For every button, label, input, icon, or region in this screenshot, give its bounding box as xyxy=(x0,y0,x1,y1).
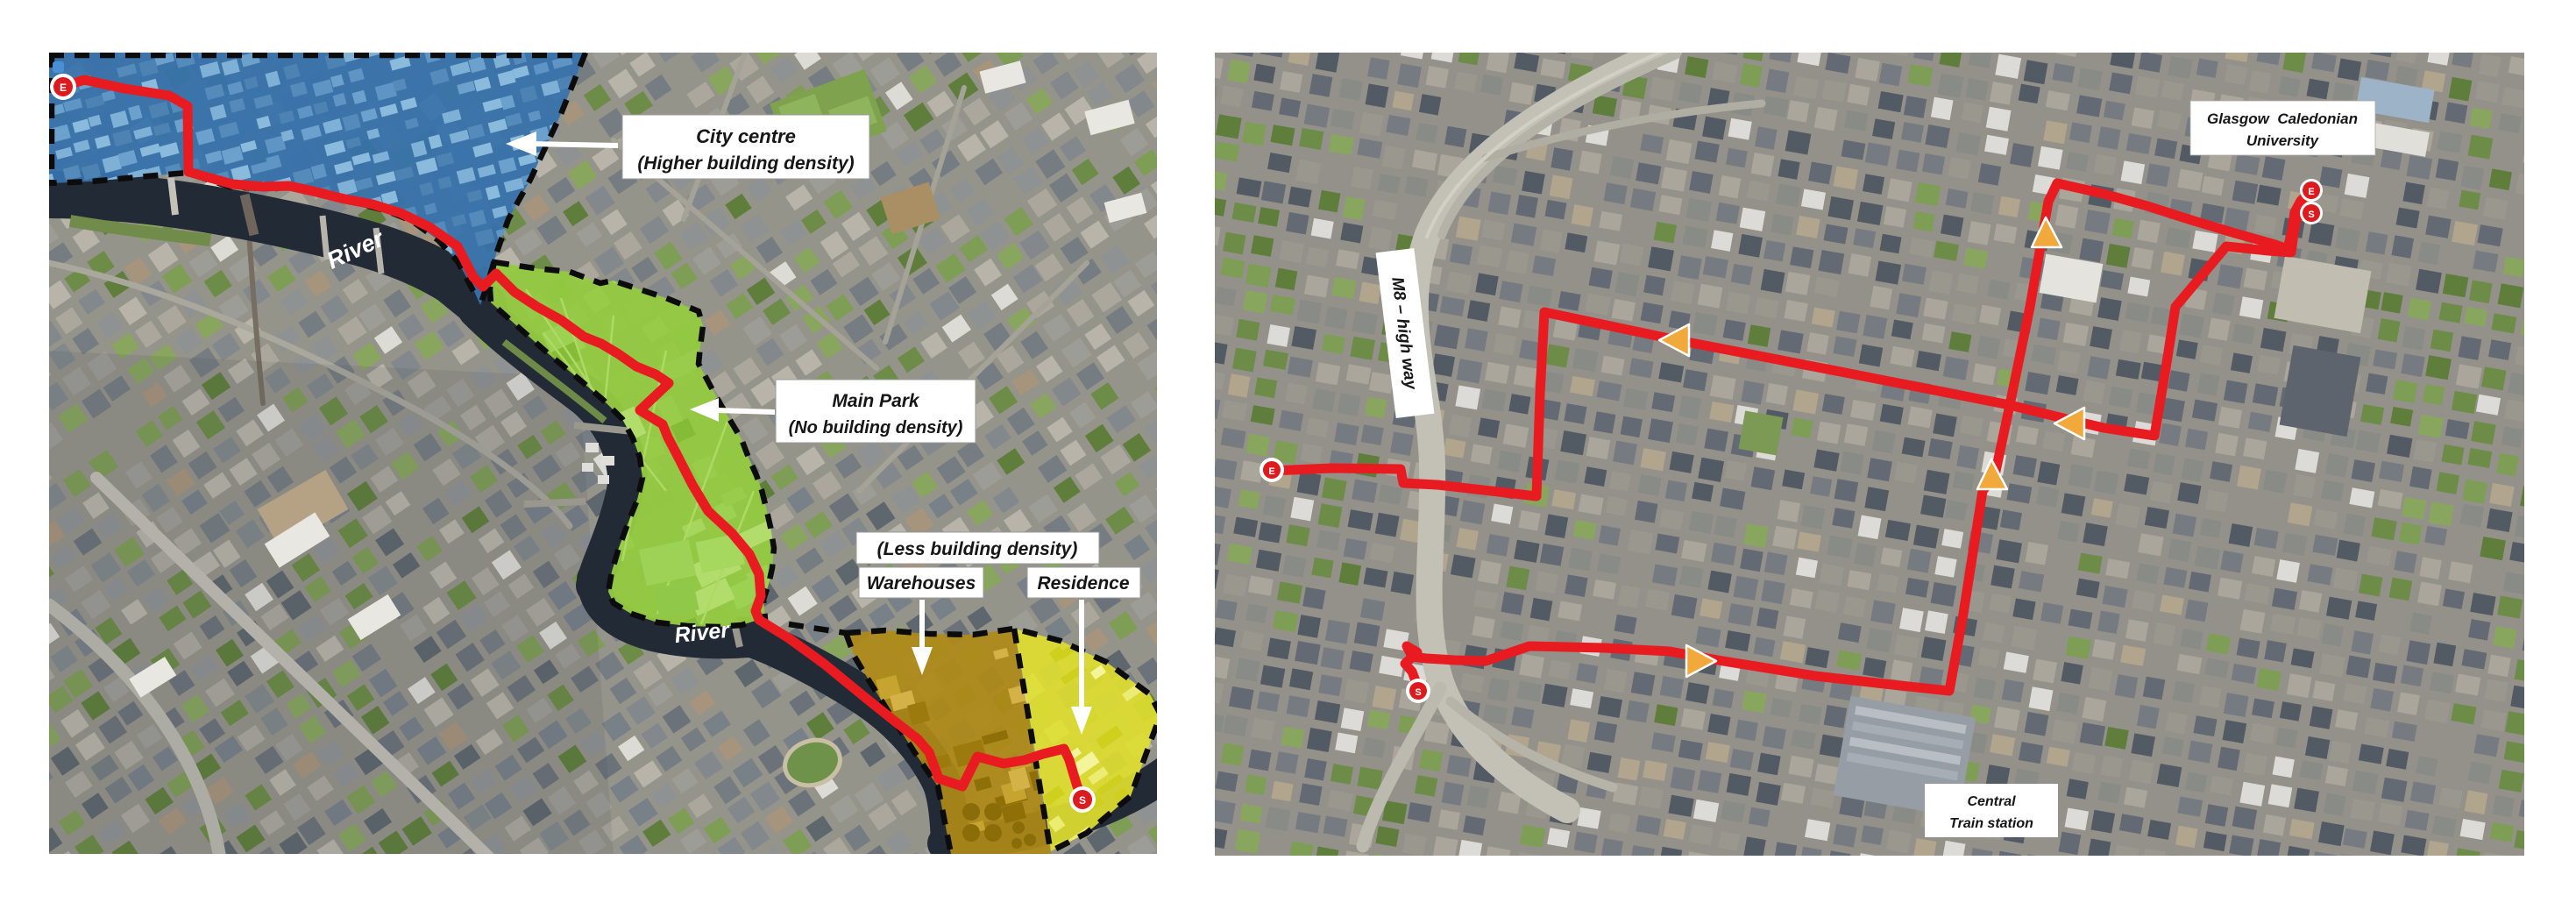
svg-text:Warehouses: Warehouses xyxy=(867,573,976,594)
svg-text:(Less building density): (Less building density) xyxy=(877,539,1078,559)
svg-text:Main Park: Main Park xyxy=(832,391,920,411)
svg-text:E: E xyxy=(60,82,67,94)
svg-text:(No building density): (No building density) xyxy=(789,418,963,437)
svg-text:(Higher building density): (Higher building density) xyxy=(637,153,854,174)
svg-text:City centre: City centre xyxy=(696,125,796,147)
svg-text:Residence: Residence xyxy=(1037,573,1129,594)
svg-text:S: S xyxy=(1079,794,1086,807)
